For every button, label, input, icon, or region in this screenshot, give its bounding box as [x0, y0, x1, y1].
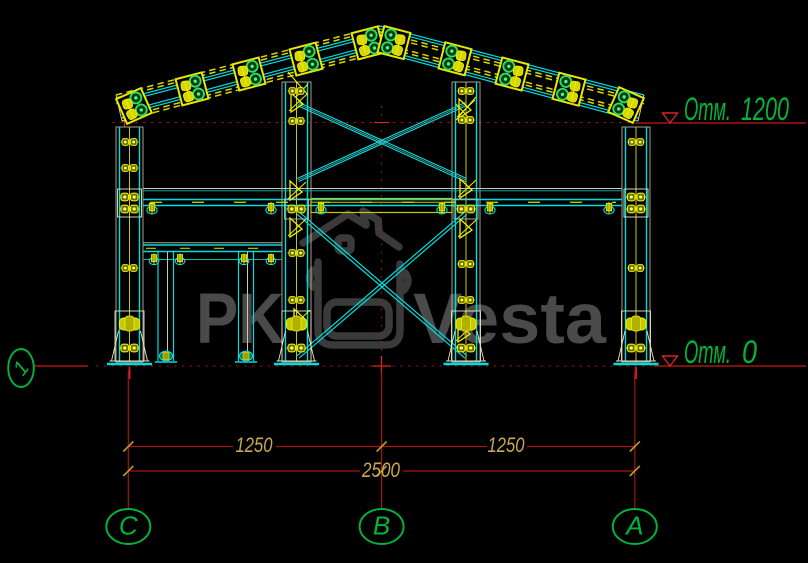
svg-text:PK: PK	[196, 280, 284, 359]
svg-text:2500: 2500	[361, 459, 400, 482]
svg-text:Отм.: Отм.	[684, 91, 731, 127]
svg-text:B: B	[373, 511, 390, 541]
svg-text:Отм.: Отм.	[684, 334, 731, 370]
svg-text:A: A	[624, 511, 643, 541]
svg-text:1250: 1250	[488, 434, 525, 457]
svg-text:1250: 1250	[236, 434, 273, 457]
svg-text:C: C	[119, 511, 138, 541]
svg-text:0: 0	[742, 334, 757, 370]
svg-text:Vesta: Vesta	[413, 280, 607, 359]
svg-text:1200: 1200	[741, 91, 789, 127]
